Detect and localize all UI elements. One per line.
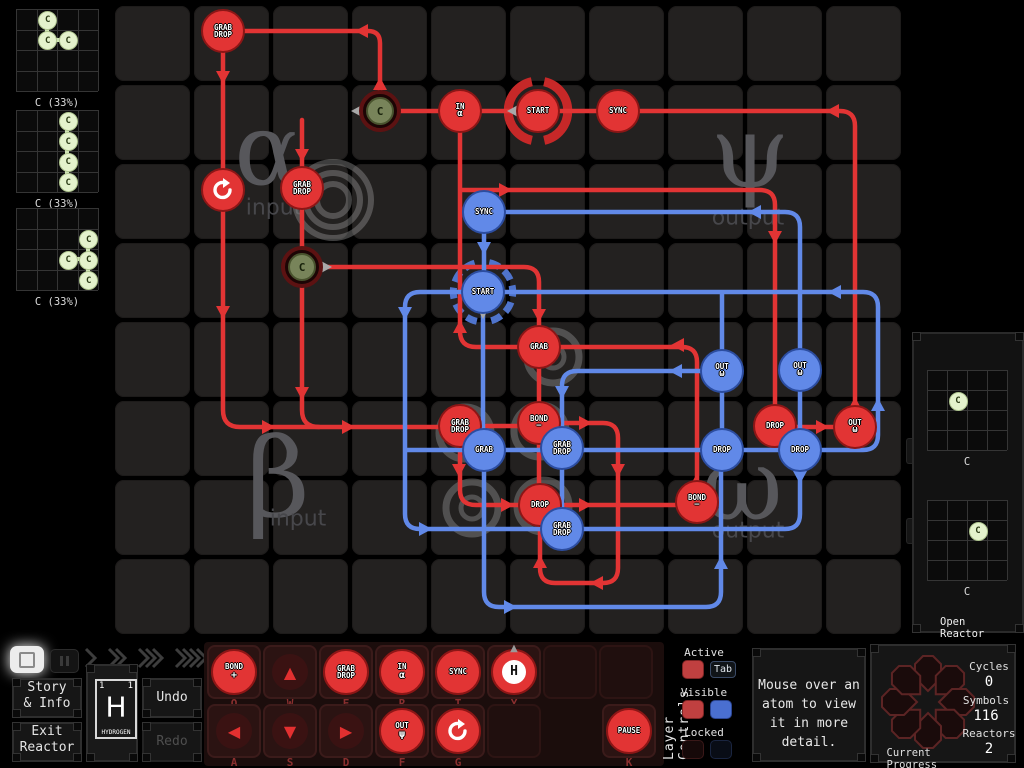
open-reactor-button[interactable]: Open Reactor — [940, 616, 996, 640]
tooltip-panel: Mouse over an atom to view it in more de… — [752, 648, 866, 762]
corner-notch — [86, 664, 95, 673]
reactor-cell[interactable] — [826, 243, 901, 318]
visible-red-swatch[interactable] — [682, 700, 704, 719]
reactor-cell[interactable] — [747, 6, 822, 81]
corner-notch — [12, 722, 21, 731]
reactors-value: 2 — [985, 741, 993, 757]
reactor-cell[interactable] — [352, 401, 427, 476]
molecule-atom: C — [59, 173, 78, 192]
story-label: Story — [27, 680, 66, 695]
molecule-grid: C — [927, 370, 1007, 450]
instruction-node-drop[interactable]: DROP — [700, 428, 744, 472]
empty-slot — [487, 704, 541, 758]
reactor-cell[interactable] — [510, 243, 585, 318]
molecule-label: C (33%) — [35, 296, 79, 308]
palette-button-arrow[interactable]: ◀ — [207, 704, 261, 758]
progress-title: Current Progress — [887, 747, 972, 768]
tab-keycap[interactable]: Tab — [710, 661, 736, 678]
arrow-icon: ▼ — [272, 713, 308, 749]
molecule-atom: C — [949, 392, 968, 411]
instruction-node-out-ω[interactable]: OUTω — [700, 349, 744, 393]
palette-button-rotate[interactable] — [431, 704, 485, 758]
reactor-cell[interactable] — [115, 322, 190, 397]
key-hint: S — [287, 756, 294, 768]
locked-red-swatch[interactable] — [682, 740, 704, 759]
reactor-cell[interactable] — [747, 243, 822, 318]
visible-blue-swatch[interactable] — [710, 700, 732, 719]
reactor-cell[interactable] — [115, 559, 190, 634]
reactor-cell[interactable] — [431, 559, 506, 634]
palette-button-grab-drop[interactable]: GRABDROP — [319, 645, 373, 699]
pause-icon — [60, 656, 63, 666]
palette-button-in-α[interactable]: INα — [375, 645, 429, 699]
empty-slot — [543, 645, 597, 699]
corner-notch — [12, 709, 21, 718]
cycles-value: 0 — [985, 674, 993, 690]
active-label: Active — [684, 646, 724, 659]
stop-icon — [19, 652, 35, 668]
arrow-icon: ▶ — [328, 713, 364, 749]
reactor-cell[interactable] — [589, 480, 664, 555]
palette-button-arrow[interactable]: ▼ — [263, 704, 317, 758]
instruction-node-out-ω[interactable]: OUTω — [778, 348, 822, 392]
reactor-cell[interactable] — [668, 243, 743, 318]
corner-notch — [73, 722, 82, 731]
key-hint: G — [455, 756, 462, 768]
molecule-atom: C — [969, 522, 988, 541]
instruction-node-rotate[interactable] — [201, 168, 245, 212]
molecule-atom: C — [59, 112, 78, 131]
palette-button-bond-+[interactable]: BOND+ — [207, 645, 261, 699]
molecule-label: C — [964, 456, 970, 468]
visible-label: Visible — [681, 686, 727, 699]
molecule-atom: C — [38, 31, 57, 50]
instruction-node-grab[interactable]: GRAB — [517, 325, 561, 369]
instruction-palette: BOND+Q▲WGRABDROPEINαRSYNCTH▲Y◀A▼S▶DOUTψF… — [204, 642, 664, 766]
key-hint: F — [399, 756, 406, 768]
active-red-swatch[interactable] — [682, 660, 704, 679]
corner-notch — [73, 753, 82, 762]
reactor-cell[interactable] — [826, 322, 901, 397]
cycles-label: Cycles — [969, 660, 1009, 673]
rotate-cw-icon — [445, 718, 471, 744]
corner-notch — [912, 332, 921, 341]
palette-button-arrow[interactable]: ▶ — [319, 704, 373, 758]
watermark-ψ: ψ — [711, 94, 789, 211]
arrow-icon: ◀ — [216, 713, 252, 749]
reactor-cell[interactable] — [273, 6, 348, 81]
corner-notch — [129, 753, 138, 762]
stop-button[interactable] — [10, 646, 44, 673]
key-hint: D — [343, 756, 350, 768]
locked-label: Locked — [684, 726, 724, 739]
reactor-cell[interactable] — [826, 6, 901, 81]
reactor-cell[interactable] — [115, 164, 190, 239]
reactor-cell[interactable] — [194, 559, 269, 634]
molecule-grid: CCC — [16, 9, 98, 91]
reactor-cell[interactable] — [826, 164, 901, 239]
reactor-cell[interactable] — [352, 480, 427, 555]
reactor-cell[interactable] — [589, 6, 664, 81]
corner-notch — [142, 722, 151, 731]
molecule-atom: C — [79, 251, 98, 270]
corner-notch — [912, 624, 921, 633]
symbols-value: 116 — [973, 708, 998, 724]
palette-button-sync[interactable]: SYNC — [431, 645, 485, 699]
molecule-grid: CCCC — [16, 110, 98, 192]
corner-notch — [193, 753, 202, 762]
atomic-number: 1 — [99, 681, 104, 691]
reactor-cell[interactable] — [589, 164, 664, 239]
corner-notch — [193, 709, 202, 718]
reactor-cell[interactable] — [826, 480, 901, 555]
molecule-atom: C — [59, 251, 78, 270]
redo-label: Redo — [144, 724, 200, 760]
molecule-atom: C — [79, 230, 98, 249]
tooltip-text: Mouse over an — [754, 676, 864, 695]
reactor-cell[interactable] — [431, 480, 506, 555]
molecule-label: C — [964, 586, 970, 598]
locked-blue-swatch[interactable] — [710, 740, 732, 759]
chevron-up-icon: ▲ — [510, 643, 518, 654]
corner-notch — [86, 753, 95, 762]
molecule-atom: C — [79, 271, 98, 290]
corner-notch — [1007, 644, 1016, 653]
corner-notch — [73, 678, 82, 687]
rotate-cw-icon — [210, 177, 236, 203]
corner-notch — [142, 678, 151, 687]
molecule-atom: C — [38, 11, 57, 30]
arrow-icon: ▲ — [272, 654, 308, 690]
molecule-atom: C — [59, 31, 78, 50]
reactor-cell[interactable] — [431, 6, 506, 81]
reactor-cell[interactable] — [589, 559, 664, 634]
reactor-cell[interactable] — [352, 559, 427, 634]
key-hint: K — [626, 756, 633, 768]
palette-button-out-ψ[interactable]: OUTψ — [375, 704, 429, 758]
element-symbol: H — [105, 691, 126, 724]
corner-notch — [1015, 624, 1024, 633]
story-info-button[interactable]: Story & Info — [12, 678, 82, 718]
palette-button-arrow[interactable]: ▲ — [263, 645, 317, 699]
empty-slot — [599, 645, 653, 699]
pause-speed-button[interactable] — [50, 649, 79, 673]
watermark-output: output — [712, 206, 785, 231]
exit-reactor-button[interactable]: Exit Reactor — [12, 722, 82, 762]
corner-notch — [12, 678, 21, 687]
carbon-atom[interactable]: C — [359, 90, 401, 132]
molecule-grid: C — [927, 500, 1007, 580]
reactor-cell[interactable] — [115, 401, 190, 476]
reactor-cell[interactable] — [589, 322, 664, 397]
reactor-cell[interactable] — [826, 559, 901, 634]
reactor-cell[interactable] — [589, 401, 664, 476]
instruction-node-grab-drop[interactable]: GRABDROP — [540, 507, 584, 551]
reactor-cell[interactable] — [668, 6, 743, 81]
instruction-node-grab-drop[interactable]: GRABDROP — [201, 9, 245, 53]
instruction-node-grab-drop[interactable]: GRABDROP — [280, 166, 324, 210]
reactor-cell[interactable] — [352, 322, 427, 397]
corner-notch — [870, 754, 879, 763]
reactor-cell[interactable] — [273, 559, 348, 634]
instruction-node-start[interactable]: START — [461, 270, 505, 314]
corner-notch — [12, 753, 21, 762]
instruction-node-grab-drop[interactable]: GRABDROP — [540, 426, 584, 470]
reactor-cell[interactable] — [194, 322, 269, 397]
corner-notch — [193, 678, 202, 687]
molecule-atom: C — [59, 153, 78, 172]
reactor-cell[interactable] — [273, 322, 348, 397]
reactor-cell[interactable] — [115, 85, 190, 160]
instruction-node-bond-−[interactable]: BOND− — [675, 480, 719, 524]
reactor-cell[interactable] — [115, 6, 190, 81]
instruction-node-drop[interactable]: DROP — [778, 428, 822, 472]
key-hint: A — [231, 756, 238, 768]
instruction-node-grab[interactable]: GRAB — [462, 428, 506, 472]
spacechem-reactor-screen: αinputψoutputβinputωoutput + −GRABDROP G… — [0, 0, 1024, 768]
reactors-label: Reactors — [963, 727, 1016, 740]
corner-notch — [142, 753, 151, 762]
reactor-cell[interactable] — [115, 243, 190, 318]
corner-notch — [857, 648, 866, 657]
corner-notch — [870, 644, 879, 653]
reactor-cell[interactable] — [352, 6, 427, 81]
corner-notch — [752, 753, 761, 762]
reactor-cell[interactable] — [431, 322, 506, 397]
corner-notch — [129, 664, 138, 673]
reactor-cell[interactable] — [510, 164, 585, 239]
carbon-atom[interactable]: C — [281, 246, 323, 288]
reactor-cell[interactable] — [668, 559, 743, 634]
corner-notch — [1015, 332, 1024, 341]
watermark-output: output — [712, 519, 785, 544]
reactor-cell[interactable] — [194, 243, 269, 318]
instruction-node-in-α[interactable]: INα — [438, 89, 482, 133]
corner-notch — [1007, 754, 1016, 763]
molecule-atom: C — [59, 132, 78, 151]
undo-button[interactable]: Undo — [142, 678, 202, 718]
corner-notch — [142, 709, 151, 718]
bottom-bar: Story & Info Exit Reactor 1 1 H HYDROGEN… — [0, 640, 1024, 768]
corner-notch — [73, 709, 82, 718]
instruction-node-sync[interactable]: SYNC — [596, 89, 640, 133]
reactor-cell[interactable] — [589, 243, 664, 318]
palette-button-pause[interactable]: PAUSE — [602, 704, 656, 758]
layer-controls: Layer Controls Active Tab Visible Locked — [660, 642, 746, 766]
reactor-cell[interactable] — [352, 164, 427, 239]
instruction-node-start[interactable]: START — [516, 89, 560, 133]
corner-notch — [193, 722, 202, 731]
progress-panel: Cycles 0 Symbols 116 Reactors 2 Current … — [870, 644, 1016, 763]
palette-button-hatom[interactable]: H▲ — [487, 645, 541, 699]
undo-label: Undo — [144, 680, 200, 716]
reactor-cell[interactable] — [747, 559, 822, 634]
molecule-label: C (33%) — [35, 97, 79, 109]
instruction-node-out-ω[interactable]: OUTω — [833, 405, 877, 449]
exit-label: Exit — [31, 724, 62, 739]
reactor-cell[interactable] — [826, 85, 901, 160]
reactor-cell[interactable] — [510, 6, 585, 81]
symbols-label: Symbols — [963, 694, 1009, 707]
corner-notch — [857, 753, 866, 762]
instruction-node-sync[interactable]: SYNC — [462, 190, 506, 234]
watermark-input: input — [270, 507, 327, 532]
corner-notch — [752, 648, 761, 657]
molecule-grid: CCCC — [16, 208, 98, 290]
element-card-hydrogen[interactable]: 1 1 H HYDROGEN — [86, 664, 138, 762]
redo-button[interactable]: Redo — [142, 722, 202, 762]
reactor-cell[interactable] — [352, 243, 427, 318]
hydrogen-atom-icon: H — [502, 660, 526, 684]
reactor-cell[interactable] — [115, 480, 190, 555]
reactor-cell[interactable] — [510, 559, 585, 634]
element-name: HYDROGEN — [102, 729, 131, 736]
